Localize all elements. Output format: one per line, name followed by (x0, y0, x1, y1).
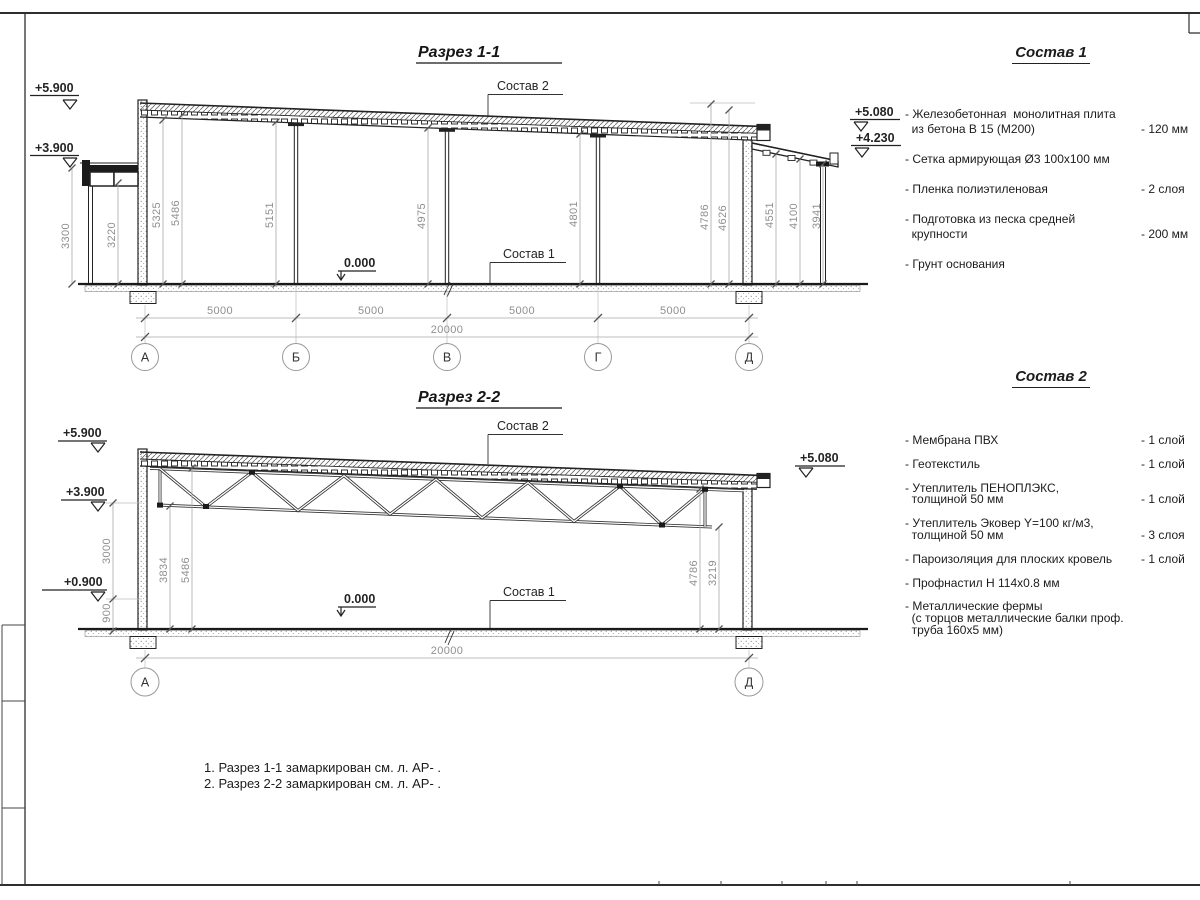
callouts: Состав 2 Состав 1 (488, 419, 566, 628)
dim-label: 4100 (788, 203, 800, 229)
section-title: Разрез 1-1 (418, 44, 500, 61)
elevation-label: +5.080 (800, 451, 839, 465)
item-value: - 1 слой (1141, 554, 1197, 566)
item-name: - Пленка полиэтиленовая (905, 182, 1141, 197)
building-outline (78, 100, 868, 304)
composition-2-title: Состав 2 (905, 368, 1197, 385)
list-item: - Пленка полиэтиленовая - 2 слоя (905, 182, 1197, 197)
list-item: - Металлические фермы (с торцов металлич… (905, 601, 1197, 636)
item-value: - 3 слоя (1141, 530, 1197, 542)
zero-level-label: 0.000 (344, 592, 375, 606)
note-line: 2. Разрез 2-2 замаркирован см. л. АР- . (204, 776, 441, 792)
axis-label: А (141, 676, 150, 690)
foundation-pad (736, 292, 762, 304)
dim-label: 5000 (660, 305, 686, 317)
list-item: - Сетка армирующая Ø3 100х100 мм (905, 152, 1197, 167)
dim-label: 4801 (568, 201, 580, 227)
item-value: - 2 слоя (1141, 182, 1197, 197)
item-name: - Утеплитель ПЕНОПЛЭКС, толщиной 50 мм (905, 483, 1141, 507)
dim-label: 4551 (764, 202, 776, 228)
item-name: - Геотекстиль (905, 459, 1141, 471)
composition-2-title-text: Состав 2 (1012, 368, 1090, 388)
axis-label: Б (292, 351, 300, 365)
list-item: - Пароизоляция для плоских кровель - 1 с… (905, 554, 1197, 566)
composition-1-title-text: Состав 1 (1012, 44, 1090, 64)
foundation-pad (736, 637, 762, 649)
list-item: - Геотекстиль - 1 слой (905, 459, 1197, 471)
foundation-pad (130, 637, 156, 649)
list-item: - Утеплитель Эковер Y=100 кг/м3, толщино… (905, 518, 1197, 542)
item-name: - Сетка армирующая Ø3 100х100 мм (905, 152, 1141, 167)
callouts: Состав 2 Состав 1 (488, 79, 566, 283)
dim-label: 5486 (180, 557, 192, 583)
corner-box (1189, 13, 1200, 33)
list-item: - Утеплитель ПЕНОПЛЭКС, толщиной 50 мм -… (905, 483, 1197, 507)
wall-A (138, 100, 147, 285)
callout-label: Состав 1 (503, 247, 555, 261)
item-value: - 120 мм (1141, 122, 1197, 137)
dim-label: 3300 (60, 223, 72, 249)
total-dim-label: 20000 (431, 645, 464, 657)
dim-label: 5325 (151, 202, 163, 228)
axis-bubbles: А Д (131, 668, 763, 696)
composition-1: Состав 1 - Железобетонная монолитная пли… (905, 44, 1197, 287)
section-2-2: Разрез 2-2 (42, 389, 868, 696)
list-item: - Железобетонная монолитная плита из бет… (905, 107, 1197, 137)
wall-D (743, 489, 752, 630)
item-name: - Железобетонная монолитная плита из бет… (905, 107, 1141, 137)
columns (288, 123, 606, 284)
floor-slab (78, 629, 868, 649)
list-item: - Мембрана ПВХ - 1 слой (905, 435, 1197, 447)
dimension-chains: 5000 5000 5000 5000 20000 А Б В Г Д (132, 287, 763, 371)
axis-bubbles: А Б В Г Д (132, 344, 763, 371)
foundation-pad (130, 292, 156, 304)
callout-label: Состав 2 (497, 419, 549, 433)
item-value: - 1 слой (1141, 435, 1197, 447)
dim-label: 3941 (811, 203, 823, 229)
axis-label: Г (595, 351, 602, 365)
elevation-label: +4.230 (856, 131, 895, 145)
item-value: - 1 слой (1141, 494, 1197, 506)
list-item: - Грунт основания (905, 257, 1197, 272)
item-name: - Подготовка из песка средней крупности (905, 212, 1141, 242)
wall-A (138, 449, 147, 630)
item-value: - 1 слой (1141, 459, 1197, 471)
note-line: 1. Разрез 1-1 замаркирован см. л. АР- . (204, 760, 441, 776)
dim-label: 5000 (509, 305, 535, 317)
zero-level-label: 0.000 (344, 256, 375, 270)
margin-stamp-cells (2, 625, 25, 885)
drawing-sheet: Разрез 1-1 (0, 0, 1200, 900)
dim-label: 3834 (158, 557, 170, 583)
vertical-dimensions: 3834 5486 4786 3219 3000 900 (101, 465, 723, 635)
axis-label: Д (745, 351, 754, 365)
axis-label: Д (745, 676, 754, 690)
section-title: Разрез 2-2 (418, 389, 500, 406)
item-name: - Грунт основания (905, 257, 1141, 272)
sheet-notes: 1. Разрез 1-1 замаркирован см. л. АР- . … (204, 760, 441, 792)
elevation-label: +3.900 (35, 141, 74, 155)
callout-label: Состав 1 (503, 585, 555, 599)
composition-2: Состав 2 - Мембрана ПВХ - 1 слой - Геоте… (905, 368, 1197, 649)
item-name: - Профнастил Н 114х0.8 мм (905, 578, 1141, 590)
dim-label: 5486 (170, 200, 182, 226)
total-dim-label: 20000 (431, 324, 464, 336)
elevation-label: +5.900 (63, 426, 102, 440)
item-name: - Металлические фермы (с торцов металлич… (905, 601, 1141, 636)
dim-label: 3219 (707, 560, 719, 586)
dimension-chains: 20000 А Д (131, 645, 763, 696)
dim-label: 3220 (106, 222, 118, 248)
dim-label: 900 (101, 603, 113, 623)
item-name: - Пароизоляция для плоских кровель (905, 554, 1141, 566)
list-item: - Профнастил Н 114х0.8 мм (905, 578, 1197, 590)
dim-label: 5000 (358, 305, 384, 317)
composition-1-title: Состав 1 (905, 44, 1197, 61)
list-item: - Подготовка из песка средней крупности … (905, 212, 1197, 242)
item-name: - Мембрана ПВХ (905, 435, 1141, 447)
dim-label: 4626 (717, 205, 729, 231)
dim-label: 5151 (264, 202, 276, 228)
elevation-label: +3.900 (66, 485, 105, 499)
item-value: - 200 мм (1141, 227, 1197, 242)
callout-label: Состав 2 (497, 79, 549, 93)
dim-label: 3000 (101, 538, 113, 564)
wall-D (743, 140, 752, 285)
axis-label: В (443, 351, 451, 365)
composition-2-items: - Мембрана ПВХ - 1 слой - Геотекстиль - … (905, 435, 1197, 637)
dim-label: 4975 (416, 203, 428, 229)
building-outline (78, 449, 868, 649)
axis-label: А (141, 351, 150, 365)
composition-1-items: - Железобетонная монолитная плита из бет… (905, 107, 1197, 272)
elevation-label: +5.900 (35, 81, 74, 95)
elevation-label: +5.080 (855, 105, 894, 119)
dim-label: 4786 (699, 204, 711, 230)
dim-label: 5000 (207, 305, 233, 317)
section-1-1: Разрез 1-1 (30, 44, 901, 371)
dim-label: 4786 (688, 560, 700, 586)
elevation-label: +0.900 (64, 575, 103, 589)
item-name: - Утеплитель Эковер Y=100 кг/м3, толщино… (905, 518, 1141, 542)
